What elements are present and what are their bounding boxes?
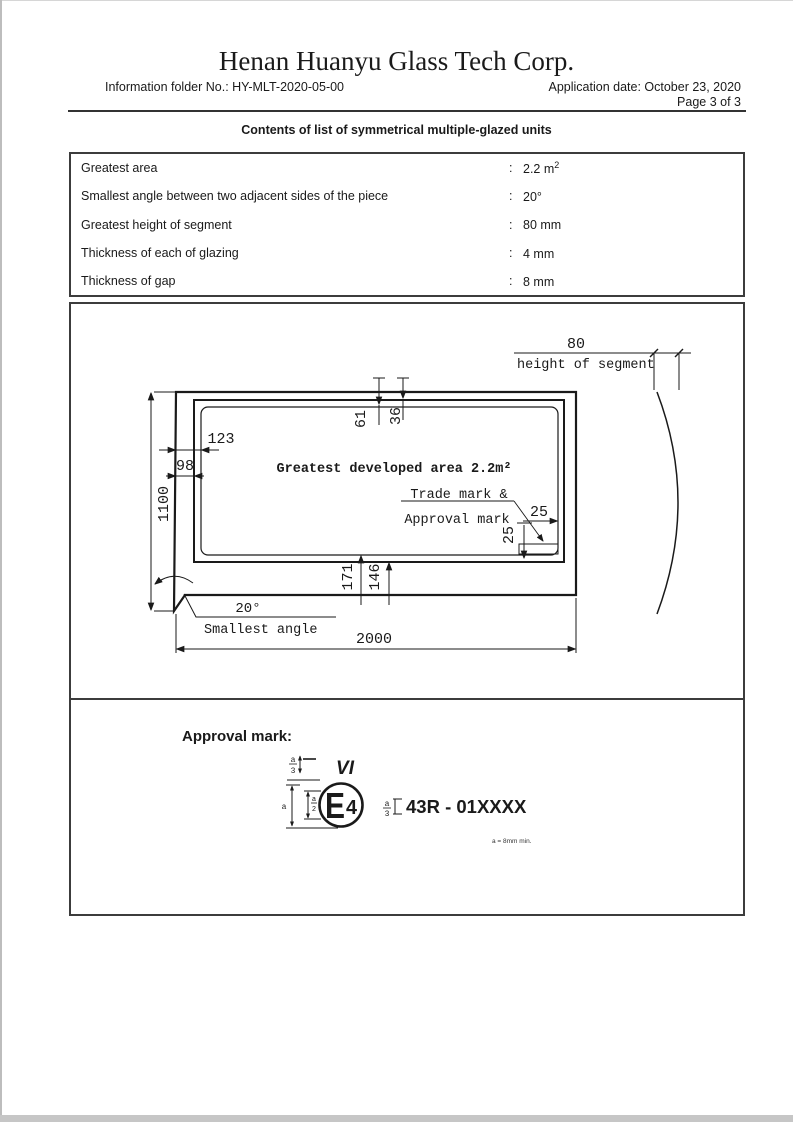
dim-36-label: 36 [388,407,405,425]
dim-146-label: 146 [367,563,384,590]
spec-value-text: 80 mm [523,219,561,233]
dim-a-third-top: a 3 [287,756,320,780]
company-title: Henan Huanyu Glass Tech Corp. [0,46,793,77]
table-row: Thickness of gap : 8 mm [71,267,743,295]
dim-1100: 1100 [151,392,175,611]
glazing-drawing: 1100 2000 123 98 [71,304,743,698]
spec-value-text: 2.2 m [523,162,554,176]
approval-mark-figure: a 3 VI E 4 a [280,746,540,852]
dim-25-horizontal: 25 [523,504,557,521]
approval-panel: Approval mark: a 3 VI E [69,700,745,916]
spec-value-sup: 2 [554,160,559,170]
table-row: Thickness of each of glazing : 4 mm [71,239,743,267]
spec-value: 4 mm [523,245,554,261]
table-row: Greatest area : 2.2 m2 [71,154,743,182]
smallest-angle-callout: 20° Smallest angle [155,576,336,638]
document-title: Contents of list of symmetrical multiple… [0,123,793,137]
spec-label: Smallest angle between two adjacent side… [81,189,388,203]
dim-98-label: 98 [176,458,194,475]
dim-61-label: 61 [353,410,370,428]
drawing-panel: 1100 2000 123 98 [69,302,745,700]
spec-value-text: 4 mm [523,247,554,261]
spec-colon: : [509,189,512,203]
spec-value-text: 8 mm [523,275,554,289]
spec-colon: : [509,161,512,175]
angle-value-label: 20° [235,601,260,617]
e-mark-letter: E [325,785,345,826]
table-row: Smallest angle between two adjacent side… [71,182,743,210]
dim-1100-label: 1100 [156,486,173,522]
spec-value: 8 mm [523,273,554,289]
spec-value: 80 mm [523,216,561,232]
dim-25v-label: 25 [501,526,518,544]
page-edge-left [0,0,2,1122]
e-mark-circle: E 4 [320,784,363,827]
frac-3-den: 3 [385,810,390,819]
trademark-box [519,544,558,554]
dim-171: 171 [340,556,361,605]
page-number: Page 3 of 3 [677,95,741,109]
spec-label: Thickness of gap [81,274,176,288]
dim-25-vertical: 25 [501,523,532,558]
folder-number: Information folder No.: HY-MLT-2020-05-0… [105,80,344,94]
document-page: Henan Huanyu Glass Tech Corp. Informatio… [0,0,793,1122]
dim-36: 36 [388,378,409,425]
area-label: Greatest developed area 2.2m² [277,462,512,477]
table-row: Greatest height of segment : 80 mm [71,210,743,238]
dim-123: 123 [159,431,235,450]
spec-value: 2.2 m2 [523,160,559,176]
approval-heading: Approval mark: [182,728,292,745]
segment-arc [657,392,678,614]
page-edge-bottom [0,1115,793,1122]
regulation-code-group: a 3 43R - 01XXXX [383,796,527,819]
e-mark-number: 4 [346,797,358,819]
height-of-segment-label: height of segment [517,358,655,373]
spec-colon: : [509,218,512,232]
regulation-code: 43R - 01XXXX [406,796,527,817]
dim-a-label: a [282,803,287,812]
dim-80-height-of-segment: 80 height of segment [514,336,691,390]
spec-colon: : [509,246,512,260]
spec-table: Greatest area : 2.2 m2 Smallest angle be… [69,152,745,297]
frac-3-den: 3 [291,767,296,776]
trademark-line2: Approval mark [404,513,509,528]
application-date: Application date: October 23, 2020 [549,80,742,94]
dim-171-label: 171 [340,563,357,590]
dim-2000-label: 2000 [356,631,392,648]
vi-class-label: VI [336,758,355,779]
spec-label: Greatest area [81,161,157,175]
spec-label: Thickness of each of glazing [81,246,239,260]
frac-2-den: 2 [312,806,316,814]
page-edge-top [0,0,793,1]
dim-146: 146 [367,563,389,605]
dimension-note: a = 8mm min. [492,838,532,845]
dim-61: 61 [353,378,385,428]
spec-value: 20° [523,188,542,204]
spec-value-text: 20° [523,190,542,204]
header-rule [68,110,746,112]
spec-colon: : [509,274,512,288]
spec-label: Greatest height of segment [81,218,232,232]
dim-98: 98 [166,458,204,476]
dim-25h-label: 25 [530,504,548,521]
dim-80-label: 80 [567,336,585,353]
smallest-angle-label: Smallest angle [204,623,317,638]
dim-123-label: 123 [207,431,234,448]
